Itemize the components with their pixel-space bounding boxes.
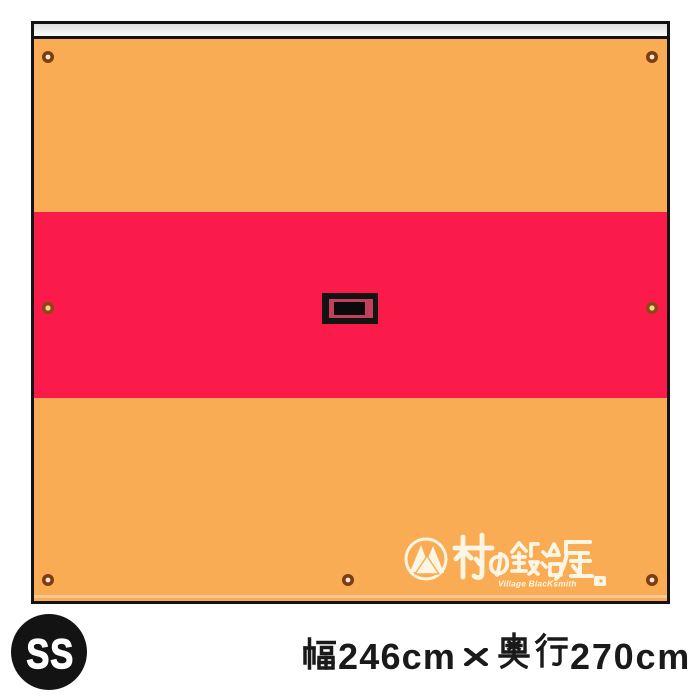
svg-text:Village BlacKsmith: Village BlacKsmith <box>498 579 577 589</box>
